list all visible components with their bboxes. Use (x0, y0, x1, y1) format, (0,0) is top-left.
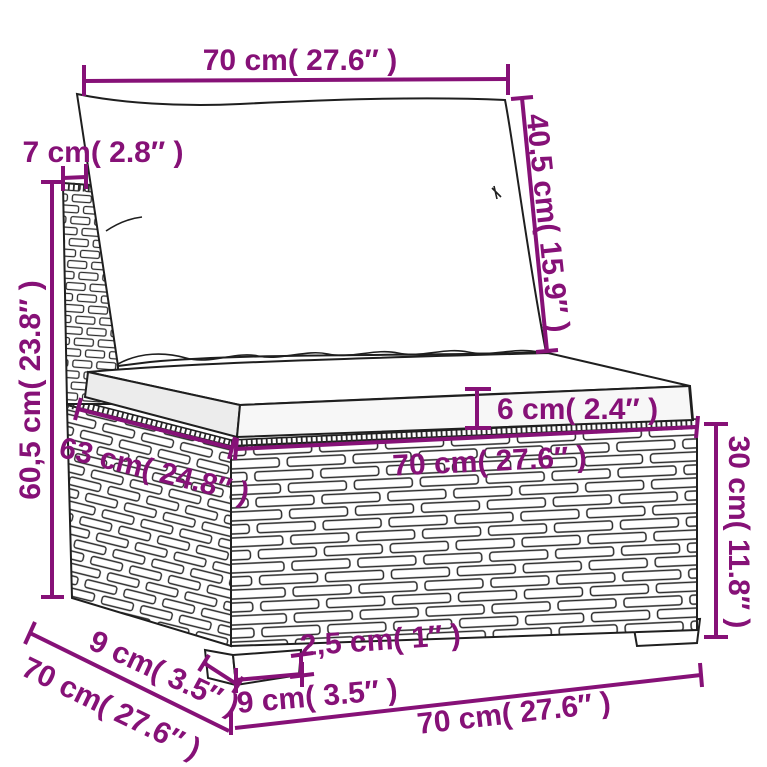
furniture-dimension-diagram: 70 cm( 27.6″ ) 7 cm( 2.8″ ) 60,5 cm( 23.… (0, 0, 767, 767)
dim-base-height: 30 cm( 11.8″ ) (704, 424, 755, 637)
dim-back-cushion-width: 70 cm( 27.6″ ) (84, 44, 508, 96)
back-cushion (77, 94, 546, 366)
total-back-height-label: 60,5 cm( 23.8″ ) (14, 280, 47, 500)
rattan-base (67, 398, 697, 646)
base-height-label: 30 cm( 11.8″ ) (722, 436, 755, 629)
dim-total-back-height: 60,5 cm( 23.8″ ) (14, 182, 64, 597)
back-frame-thickness-label: 7 cm( 2.8″ ) (22, 136, 183, 169)
sofa-drawing (63, 94, 700, 685)
seat-cushion-thickness-label: 6 cm( 2.4″ ) (497, 393, 658, 426)
back-cushion-width-label: 70 cm( 27.6″ ) (203, 44, 397, 77)
